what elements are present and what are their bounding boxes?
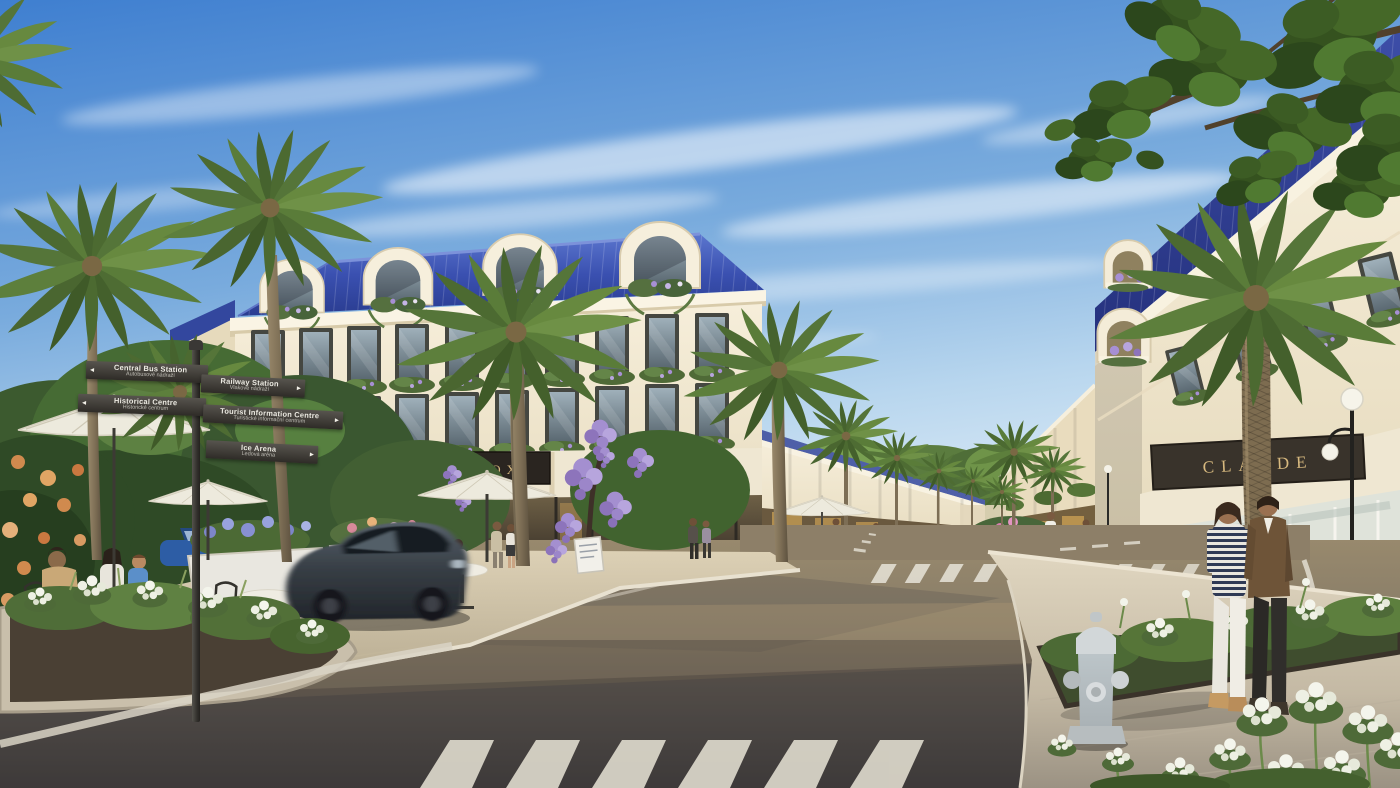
scene-canvas: ✦ GRACE FOX BOREAU CLAUDE <box>0 0 1400 788</box>
sidewalk-sign-board <box>574 537 603 574</box>
street-scene: ✦ GRACE FOX BOREAU CLAUDE <box>0 0 1400 788</box>
